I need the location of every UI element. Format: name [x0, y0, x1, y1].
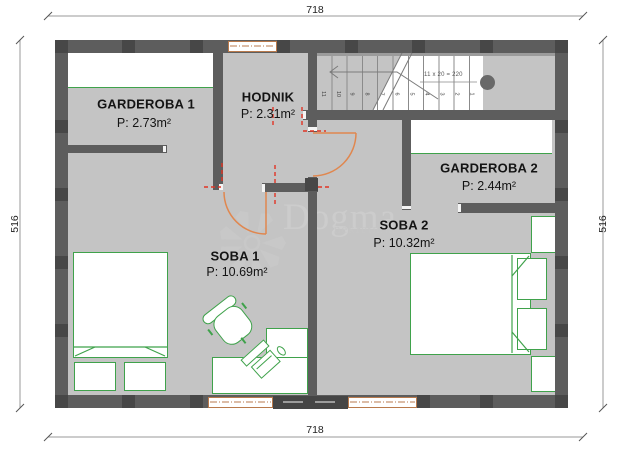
wall-under-stairs: [303, 110, 555, 120]
tread-number: 3: [439, 92, 445, 95]
bed-soba2-pillow-bottom: [517, 308, 547, 350]
wall-junction-block: [305, 178, 318, 191]
tread-number: 2: [454, 92, 460, 95]
closet-garderoba1: [68, 52, 214, 88]
bed-soba1-pillow-right: [124, 362, 166, 391]
dimension-top: 718: [306, 4, 324, 16]
bed-soba1: [73, 252, 168, 358]
nightstand-bottom: [531, 356, 556, 392]
wall-garderoba2-left: [402, 120, 411, 210]
bed-soba2: [410, 253, 531, 355]
stair-column: [480, 75, 495, 90]
bed-soba1-pillow-left: [74, 362, 116, 391]
dimension-bottom: 718: [306, 424, 324, 436]
wall-garderoba1-bottom: [63, 145, 167, 153]
wall-right: [555, 40, 568, 408]
wall-soba1-soba2: [308, 177, 317, 396]
tread-number: 9: [349, 92, 355, 95]
window-bottom-right: [348, 397, 417, 408]
dimension-left: 516: [9, 215, 21, 233]
tread-number: 1: [469, 92, 475, 95]
room-name-garderoba1: GARDEROBA 1: [97, 97, 195, 112]
tread-number: 8: [364, 92, 370, 95]
dimension-right: 516: [597, 215, 609, 233]
room-area-soba1: P: 10.69m²: [206, 265, 267, 279]
room-area-garderoba2: P: 2.44m²: [462, 179, 516, 193]
tread-number: 6: [394, 92, 400, 95]
wall-garderoba2-bottom: [458, 203, 555, 213]
room-area-hodnik: P: 2.31m²: [241, 107, 295, 121]
stair-note: 11 x 20 = 220: [424, 72, 463, 78]
window-bottom-left: [208, 397, 273, 408]
wall-left: [55, 40, 68, 408]
tread-number: 4: [424, 92, 430, 95]
tread-number: 11: [320, 91, 326, 97]
room-name-garderoba2: GARDEROBA 2: [440, 161, 538, 176]
room-name-hodnik: HODNIK: [242, 90, 294, 105]
room-area-garderoba1: P: 2.73m²: [117, 116, 171, 130]
room-name-soba2: SOBA 2: [379, 218, 428, 233]
window-top: [228, 41, 277, 52]
mouse: [275, 344, 288, 357]
wall-garderoba1-right: [213, 52, 223, 190]
nightstand-top: [531, 216, 556, 253]
tread-number: 7: [379, 92, 385, 95]
closet-garderoba2: [411, 120, 552, 154]
staircase: 11 10 9 8 7 6 5 4 3 2 1: [317, 53, 483, 110]
bed-soba2-pillow-top: [517, 258, 547, 300]
tread-number: 10: [335, 91, 341, 97]
room-area-soba2: P: 10.32m²: [373, 236, 434, 250]
tread-number: 5: [409, 92, 415, 95]
room-name-soba1: SOBA 1: [210, 249, 259, 264]
stair-treads: [317, 53, 483, 110]
wall-hodnik-right-upper: [308, 52, 317, 132]
floor-plan: 718 718 516 516 11 10 9 8 7 6 5 4 3 2 1 …: [0, 0, 619, 461]
